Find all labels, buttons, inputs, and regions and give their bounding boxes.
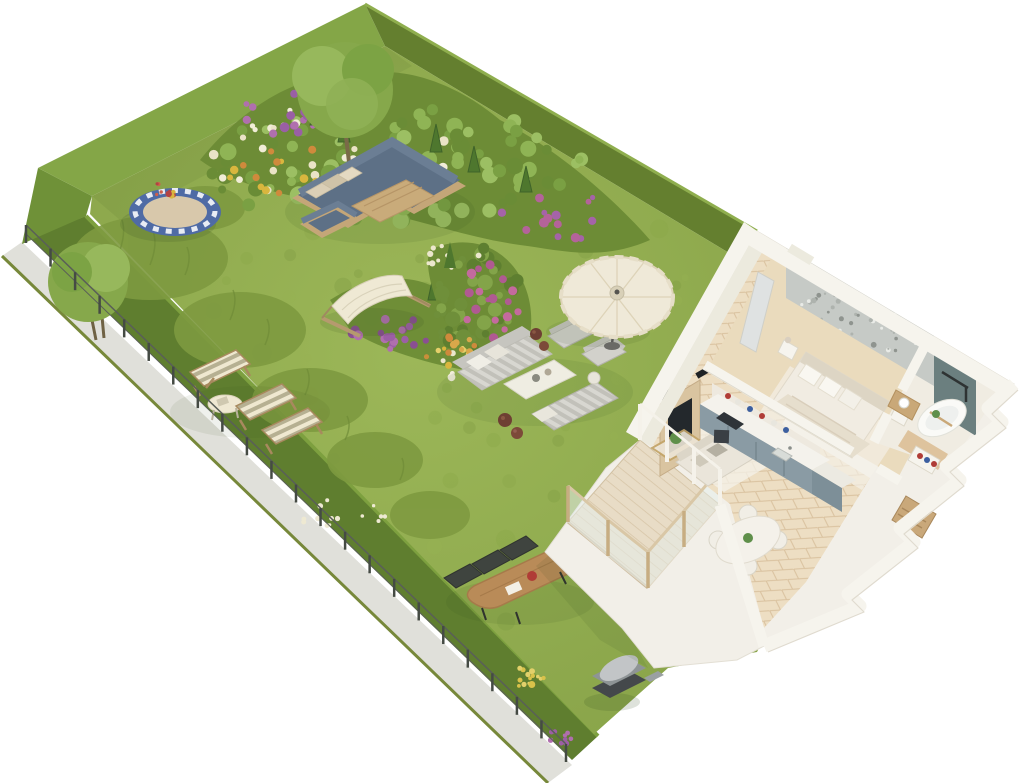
floor-plan-render: [0, 0, 1024, 783]
faucet: [788, 446, 792, 450]
plant-bathtub: [932, 410, 940, 418]
plant-dining-table: [743, 533, 753, 543]
isometric-garden-apartment-svg: [0, 0, 1024, 783]
teapot: [527, 571, 537, 581]
lounge-side-table: [588, 372, 600, 384]
oven: [714, 430, 729, 444]
bedside-lamp-1: [785, 337, 791, 343]
